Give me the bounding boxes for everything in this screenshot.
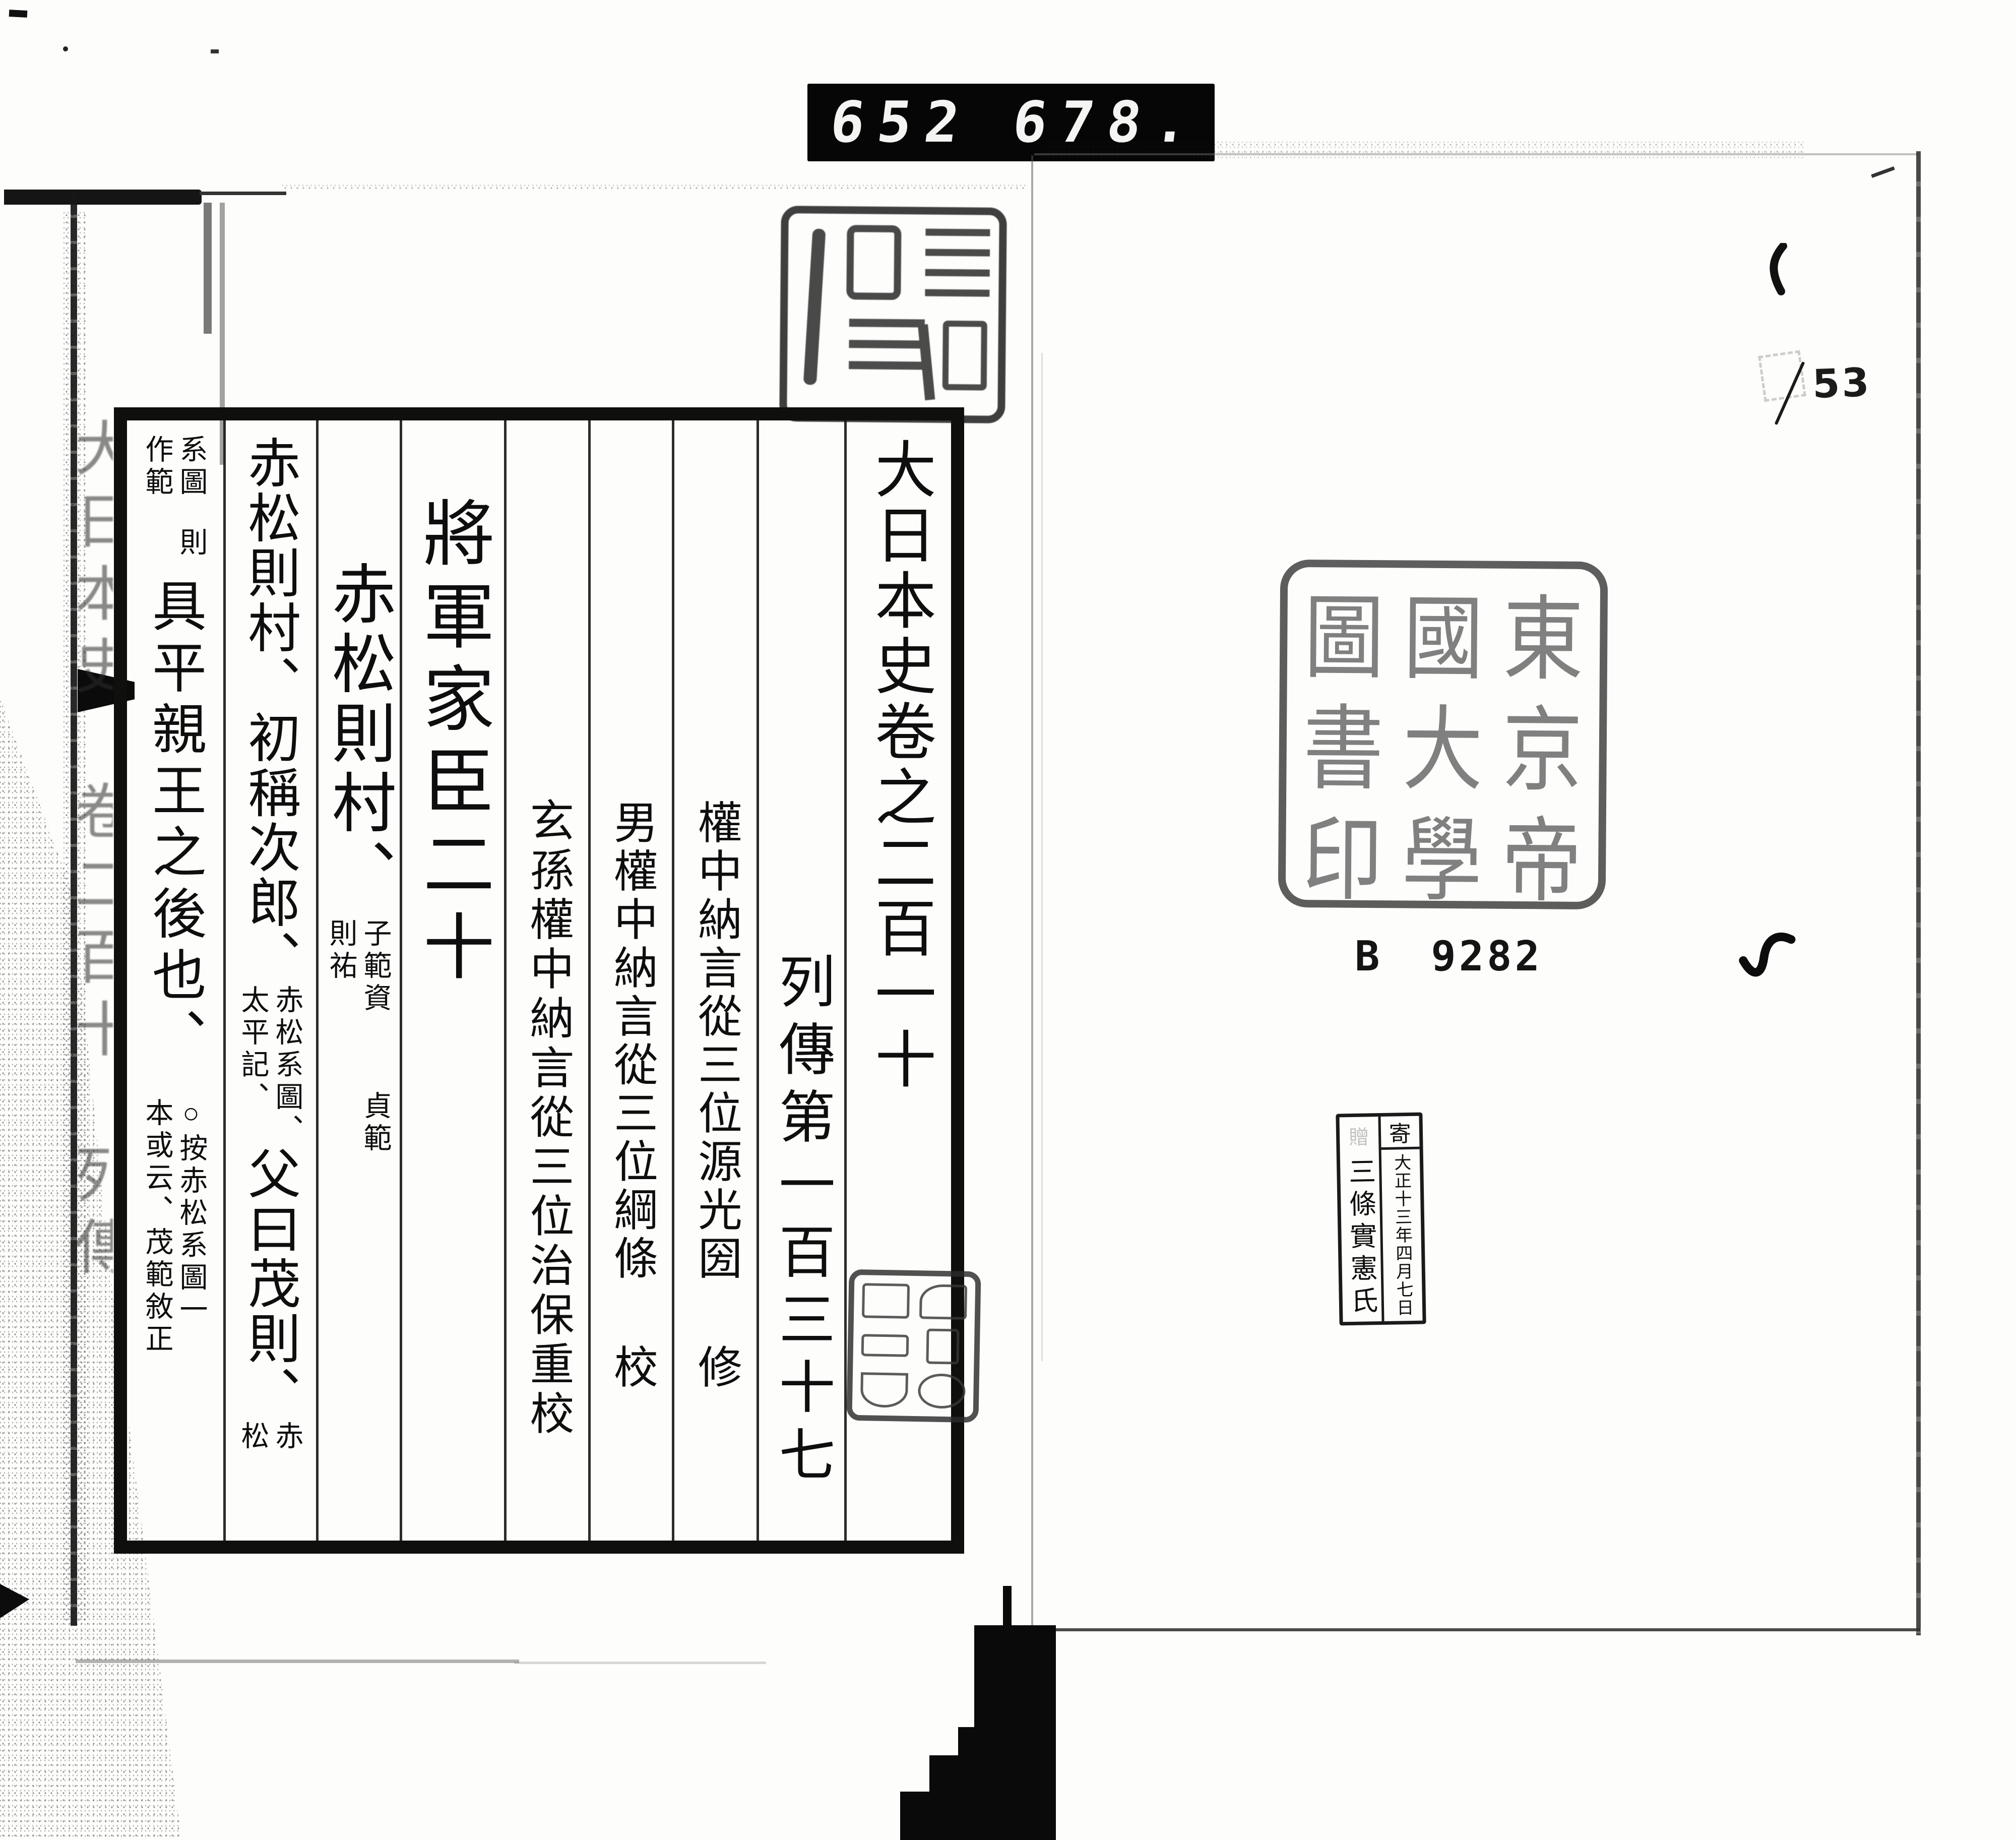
seal-glyph — [914, 1325, 970, 1369]
spacer — [1382, 933, 1431, 980]
scanned-book-spread: 652 678. 大日本史 卷二百十 列傳 大日本史卷之二百一十 列傳第一 — [0, 0, 2016, 1840]
shelf-mark-number: 9282 — [1431, 933, 1542, 980]
seal-stroke — [803, 228, 826, 385]
note-text: 赤松系圖、 — [273, 985, 301, 1146]
body-inline-note: 赤 松 — [226, 1421, 313, 1453]
compiler-name: 權中納言從三位源光圀 — [694, 800, 738, 1283]
seal-character: 印 — [1290, 785, 1396, 918]
note-text: 本或云、茂範敘正 — [143, 1098, 171, 1356]
gutter-shadow-blob — [974, 1625, 1056, 1840]
donation-stamp-date-column: 寄 大正十三年四月七日 — [1378, 1116, 1423, 1321]
library-seal-grid: 圖 國 東 書 大 京 印 學 帝 — [1286, 567, 1601, 902]
ink-comma-mark — [1762, 243, 1792, 298]
note-right-subcolumn: 赤 — [273, 1421, 301, 1453]
note-right-subcolumn: ○按赤松系圖一 — [177, 1098, 205, 1356]
compiler-role: 修 — [694, 1344, 738, 1388]
ink-blot — [1737, 926, 1802, 986]
donation-stamp-header: 寄 — [1380, 1116, 1420, 1150]
page-top-edge-bar — [4, 190, 202, 205]
column-section-title: 列傳第一百三十七 — [759, 420, 844, 1541]
header-seal — [779, 206, 1007, 423]
column-chapter-heading: 將軍家臣二十 — [402, 420, 501, 1541]
seal-character: 帝 — [1489, 786, 1594, 920]
shelf-mark: B 9282 — [1355, 933, 1543, 980]
note-left-subcolumn: 太平記、 — [238, 985, 267, 1146]
gutter-fold-line — [1041, 353, 1043, 1361]
column-subject: 赤松則村、 子範資 貞範 則祐 — [319, 420, 397, 1541]
body-inline-note: ○按赤松系圖一 本或云、茂範敘正 — [127, 1098, 221, 1356]
page-bottom-edge — [76, 1660, 519, 1663]
subject-name: 赤松則村、 — [326, 561, 390, 908]
note-text: 貞範 — [361, 1091, 389, 1155]
donation-stamp-name: 三條實憲氏 — [1346, 1157, 1376, 1319]
body-text: 赤松則村、初稱次郎、 — [243, 436, 296, 985]
note-left-subcolumn: 松 — [238, 1421, 267, 1453]
seal-glyph — [857, 1324, 913, 1368]
section-title: 列傳第一百三十七 — [774, 952, 830, 1493]
note-text: 則祐 — [327, 918, 355, 983]
compiler-name: 玄孫權中納言從三位治保重校 — [525, 798, 570, 1440]
film-speck — [63, 46, 68, 51]
donation-stamp: 寄 大正十三年四月七日 贈 三條實憲氏 — [1336, 1113, 1426, 1326]
right-page-top-speckle — [1048, 141, 1804, 158]
body-inline-note: 系圖 則 作範 — [127, 435, 221, 560]
body-text: 具平親王之後也、 — [147, 578, 201, 1070]
seal-stroke — [925, 229, 990, 310]
note-left-subcolumn: 作範 — [143, 435, 171, 560]
note-text: 松 — [238, 1421, 267, 1453]
gutter-fold-line — [1031, 155, 1033, 1630]
gutter-seal — [846, 1269, 981, 1423]
compiler-role: 校 — [609, 1344, 654, 1388]
column-compiler-3: 玄孫權中納言從三位治保重校 — [507, 420, 588, 1541]
donation-stamp-date: 大正十三年四月七日 — [1392, 1153, 1412, 1317]
note-text: ○按赤松系圖一 — [177, 1098, 205, 1327]
note-right-subcolumn: 子範資 貞範 — [361, 918, 389, 1155]
right-page-bottom-edge — [1033, 1628, 1920, 1631]
gutter-shadow-step — [929, 1755, 958, 1840]
gutter-shadow-step — [958, 1727, 974, 1840]
seal-stroke — [849, 319, 925, 381]
note-text: 則 — [177, 527, 205, 560]
column-body-line-2: 系圖 則 作範 具平親王之後也、 ○按赤松系圖一 本或云、茂範敘正 — [127, 420, 221, 1541]
donation-stamp-header-faint: 贈 — [1349, 1121, 1369, 1150]
spine-label: 大日本史 卷二百十 列傳 — [69, 417, 113, 1289]
shelf-mark-prefix: B — [1355, 933, 1382, 980]
subject-children-note: 子範資 貞範 則祐 — [319, 918, 397, 1155]
note-text: 系圖 — [177, 435, 205, 499]
seal-glyph — [856, 1368, 912, 1412]
seal-stroke — [942, 321, 987, 391]
note-left-subcolumn: 則祐 — [327, 918, 355, 1155]
frame-counter-left: 652 — [827, 90, 976, 155]
library-seal: 圖 國 東 書 大 京 印 學 帝 — [1278, 560, 1608, 910]
note-text: 太平記、 — [238, 985, 267, 1114]
seal-glyph — [915, 1280, 971, 1324]
right-page-right-edge — [1916, 151, 1921, 1635]
column-compiler-1: 權中納言從三位源光圀 修 — [674, 420, 757, 1541]
page-top-edge-line — [200, 192, 286, 195]
seal-glyph — [858, 1279, 914, 1323]
faint-scribble-box — [1758, 350, 1806, 402]
gutter-seal-grid — [852, 1275, 976, 1417]
note-left-subcolumn: 本或云、茂範敘正 — [143, 1098, 171, 1356]
ink-drip — [204, 203, 212, 334]
handwritten-page-number: 53 — [1811, 360, 1872, 407]
gutter-shadow-step — [900, 1792, 929, 1840]
note-right-subcolumn: 系圖 則 — [177, 435, 205, 560]
note-text: 作範 — [143, 435, 171, 499]
page-top-edge-speckle — [282, 185, 1028, 190]
volume-title: 大日本史卷之二百一十 — [869, 438, 930, 1093]
donation-stamp-name-column: 贈 三條實憲氏 — [1339, 1117, 1381, 1322]
spine-label-strip: 大日本史 卷二百十 列傳 — [48, 417, 113, 1506]
column-compiler-2: 男權中納言從三位綱條 校 — [591, 420, 672, 1541]
compiler-name: 男權中納言從三位綱條 — [609, 800, 654, 1283]
seal-stroke — [846, 225, 901, 300]
note-right-subcolumn: 赤松系圖、 — [273, 985, 301, 1146]
note-text: 赤 — [273, 1421, 301, 1453]
column-body-line-1: 赤松則村、初稱次郎、 赤松系圖、 太平記、 父曰茂則、 赤 松 — [226, 420, 313, 1541]
seal-glyph — [914, 1369, 970, 1413]
body-inline-note: 赤松系圖、 太平記、 — [226, 985, 313, 1146]
seal-character: 學 — [1390, 785, 1495, 919]
page-bottom-edge — [514, 1662, 766, 1664]
chapter-heading: 將軍家臣二十 — [416, 496, 488, 992]
gutter-shadow-line — [1003, 1586, 1012, 1629]
film-speck — [9, 10, 28, 18]
note-text: 子範資 — [361, 918, 389, 1015]
film-speck — [1871, 166, 1895, 178]
film-speck — [211, 49, 219, 53]
body-text: 父曰茂則、 — [243, 1146, 296, 1421]
